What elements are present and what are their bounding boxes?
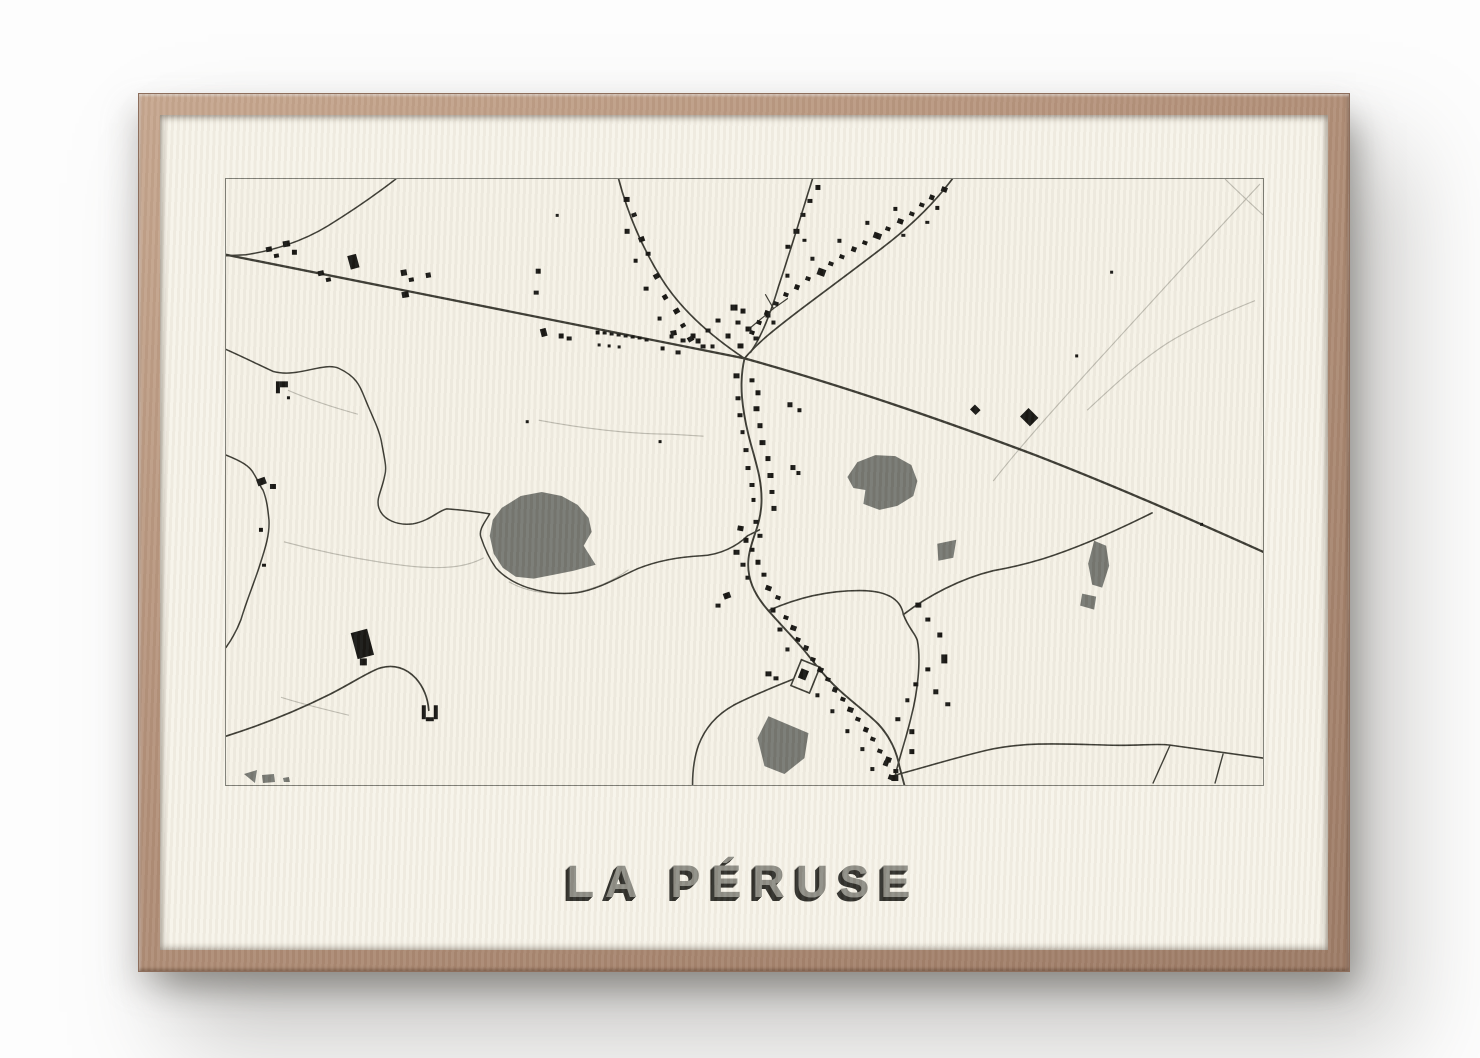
forest-water-patches <box>244 455 1109 783</box>
map-canvas <box>226 179 1263 785</box>
roads <box>226 179 1263 785</box>
poster-mat: LA PÉRUSE <box>160 115 1328 950</box>
map-sheet <box>225 178 1264 786</box>
poster-frame: LA PÉRUSE <box>138 93 1350 972</box>
buildings <box>256 185 1203 781</box>
minor-paths <box>281 179 1263 715</box>
poster-title: LA PÉRUSE <box>160 856 1328 908</box>
product-photo-stage: LA PÉRUSE <box>0 0 1480 1058</box>
